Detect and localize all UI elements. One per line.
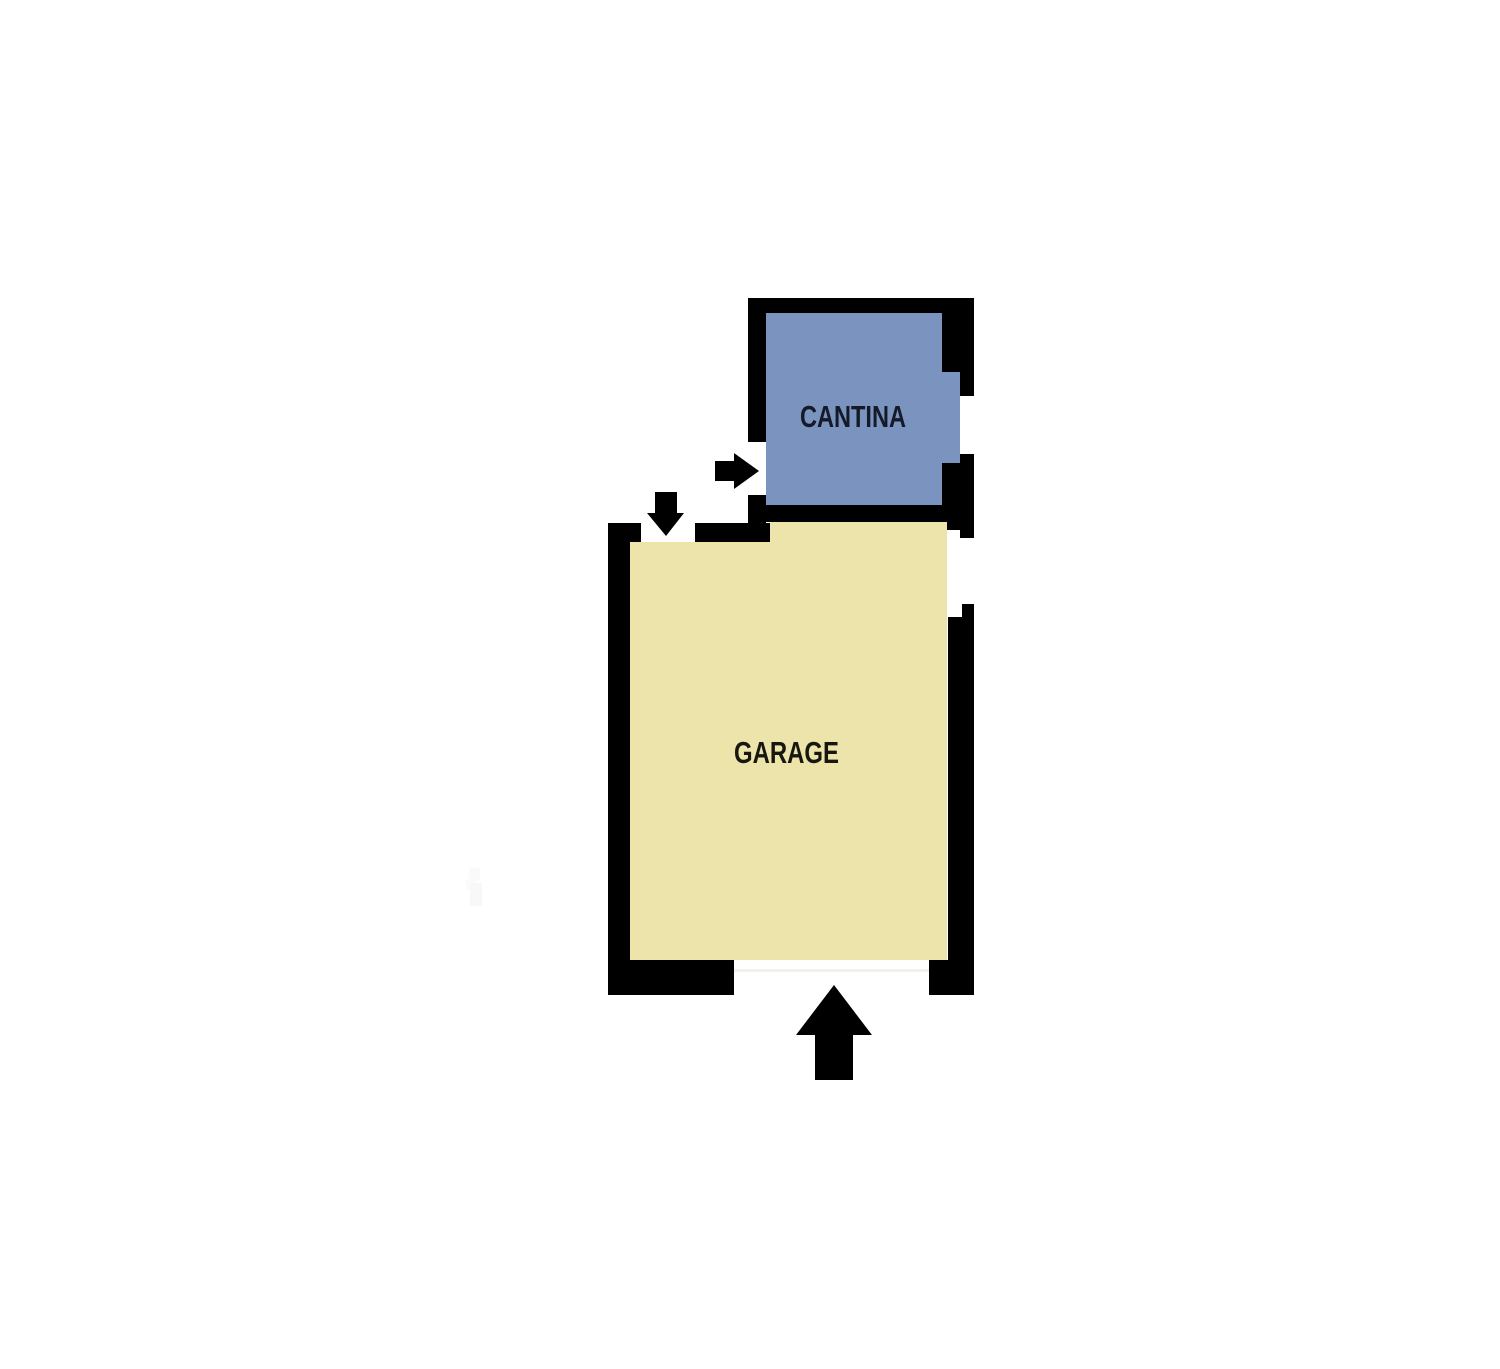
svg-text:CANTINA: CANTINA bbox=[800, 399, 906, 434]
svg-text:GARAGE: GARAGE bbox=[734, 735, 839, 770]
